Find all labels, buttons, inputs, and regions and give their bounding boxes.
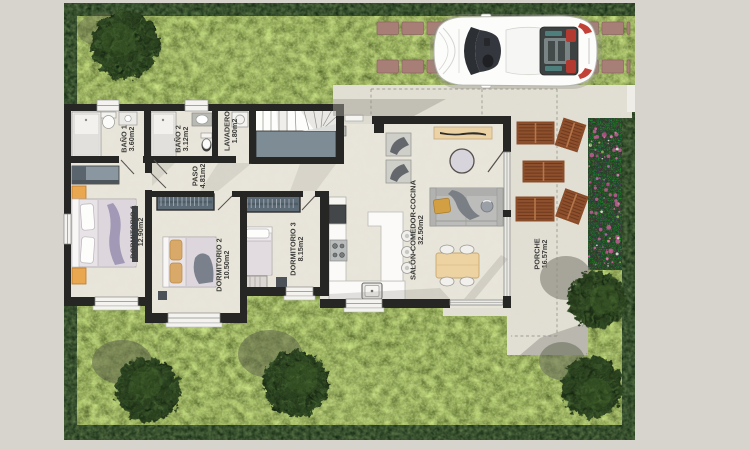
svg-text:3.12m2: 3.12m2 — [181, 127, 190, 152]
svg-text:10.50m2: 10.50m2 — [222, 251, 231, 280]
svg-text:1.80m2: 1.80m2 — [230, 119, 239, 144]
svg-text:4.81m2: 4.81m2 — [198, 164, 207, 189]
svg-text:8.15m2: 8.15m2 — [296, 237, 305, 262]
svg-text:12.90m2: 12.90m2 — [136, 218, 145, 247]
svg-text:32.50m2: 32.50m2 — [416, 215, 425, 245]
svg-text:3.60m2: 3.60m2 — [127, 127, 136, 152]
